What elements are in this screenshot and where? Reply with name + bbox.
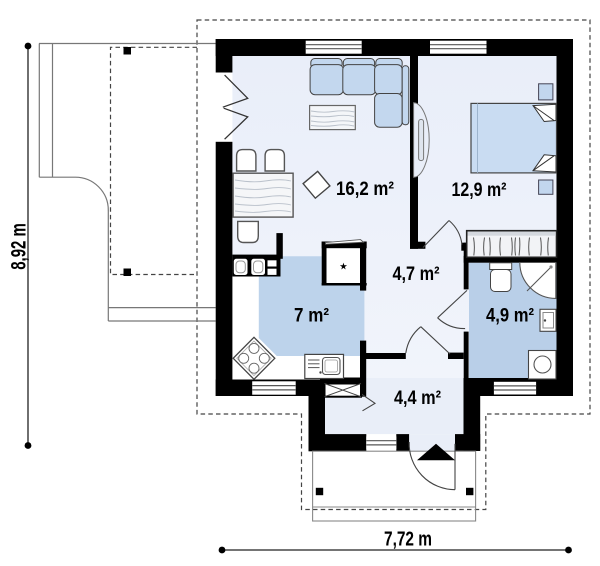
svg-text:★: ★ <box>340 262 348 271</box>
svg-text:7 m²: 7 m² <box>294 305 329 327</box>
svg-text:16,2 m²: 16,2 m² <box>336 178 394 200</box>
svg-text:7,72 m: 7,72 m <box>384 529 432 551</box>
svg-text:12,9 m²: 12,9 m² <box>452 179 507 201</box>
svg-text:4,9 m²: 4,9 m² <box>486 305 534 327</box>
svg-text:4,4 m²: 4,4 m² <box>394 387 441 409</box>
svg-text:8,92 m: 8,92 m <box>8 223 31 270</box>
svg-text:4,7 m²: 4,7 m² <box>393 263 440 285</box>
